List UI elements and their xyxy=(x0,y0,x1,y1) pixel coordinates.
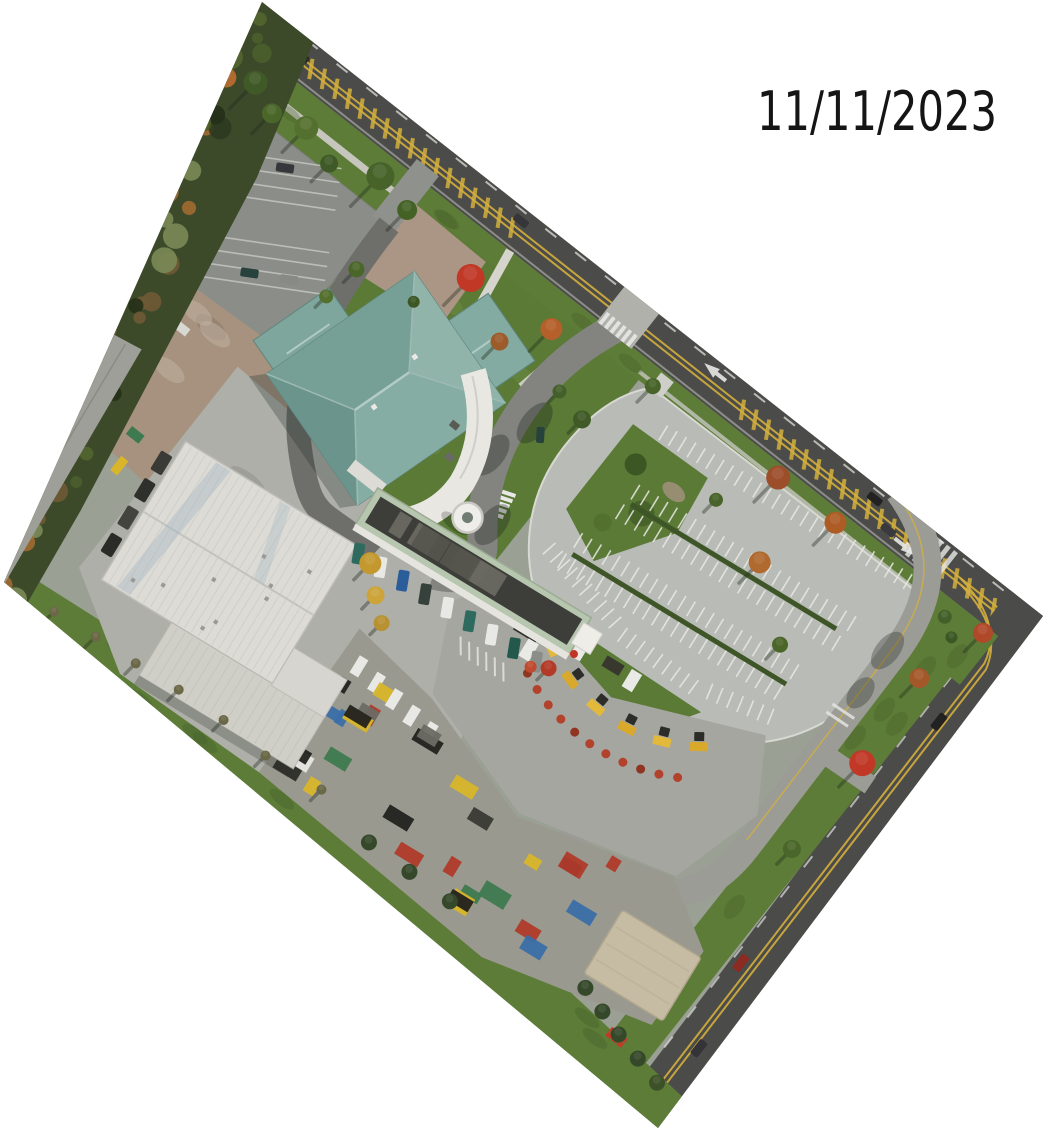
screenshot-root: 11/11/2023 xyxy=(0,0,1051,1133)
orthophoto-image xyxy=(0,0,1051,1133)
orthophoto-svg: 11/11/2023 xyxy=(0,0,1051,1133)
capture-date-label: 11/11/2023 xyxy=(757,80,997,143)
